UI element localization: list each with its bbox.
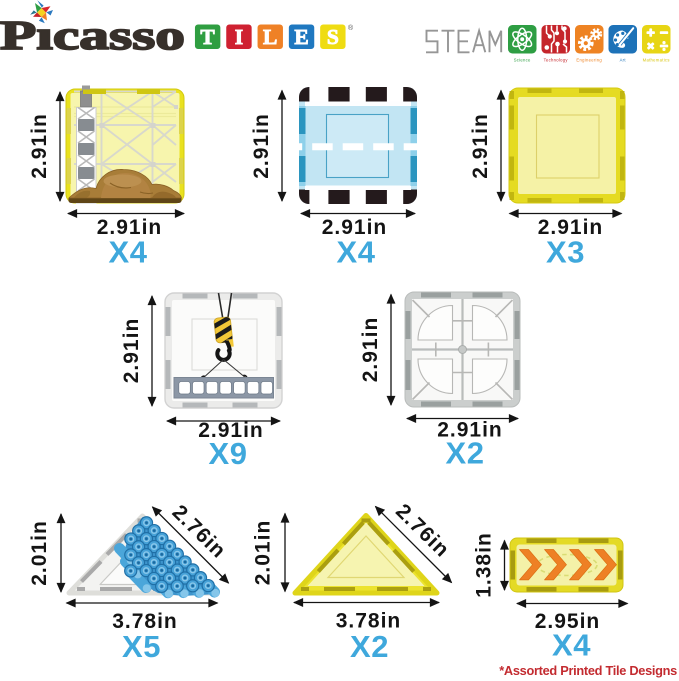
svg-text:X5: X5 [122, 629, 161, 664]
svg-text:2.91in: 2.91in [120, 318, 143, 384]
svg-text:Engineering: Engineering [576, 58, 602, 63]
svg-text:X9: X9 [209, 436, 248, 471]
svg-text:Technology: Technology [544, 58, 569, 63]
svg-text:1.38in: 1.38in [473, 532, 496, 598]
svg-text:I: I [235, 25, 243, 49]
svg-text:X2: X2 [446, 436, 485, 471]
svg-text:2.91in: 2.91in [250, 113, 273, 179]
svg-text:Art: Art [620, 58, 627, 63]
svg-text:T: T [200, 25, 215, 49]
svg-text:2.91in: 2.91in [359, 317, 382, 383]
svg-text:E: E [294, 25, 308, 49]
svg-text:*Assorted Printed Tile Designs: *Assorted Printed Tile Designs [499, 663, 677, 678]
svg-text:S: S [327, 25, 339, 49]
svg-text:2.01in: 2.01in [252, 520, 275, 586]
svg-text:2.91in: 2.91in [469, 113, 492, 179]
svg-text:Pıcasso: Pıcasso [0, 12, 185, 58]
svg-text:®: ® [348, 24, 354, 32]
svg-text:2.01in: 2.01in [28, 520, 51, 586]
svg-text:X2: X2 [350, 629, 389, 664]
svg-text:X4: X4 [337, 235, 376, 270]
svg-text:2.91in: 2.91in [28, 113, 51, 179]
svg-text:Science: Science [514, 58, 531, 63]
svg-text:X4: X4 [552, 628, 591, 663]
svg-text:Mathematics: Mathematics [643, 58, 670, 63]
svg-text:X3: X3 [546, 235, 585, 270]
svg-text:X4: X4 [109, 235, 148, 270]
svg-text:L: L [263, 25, 277, 49]
